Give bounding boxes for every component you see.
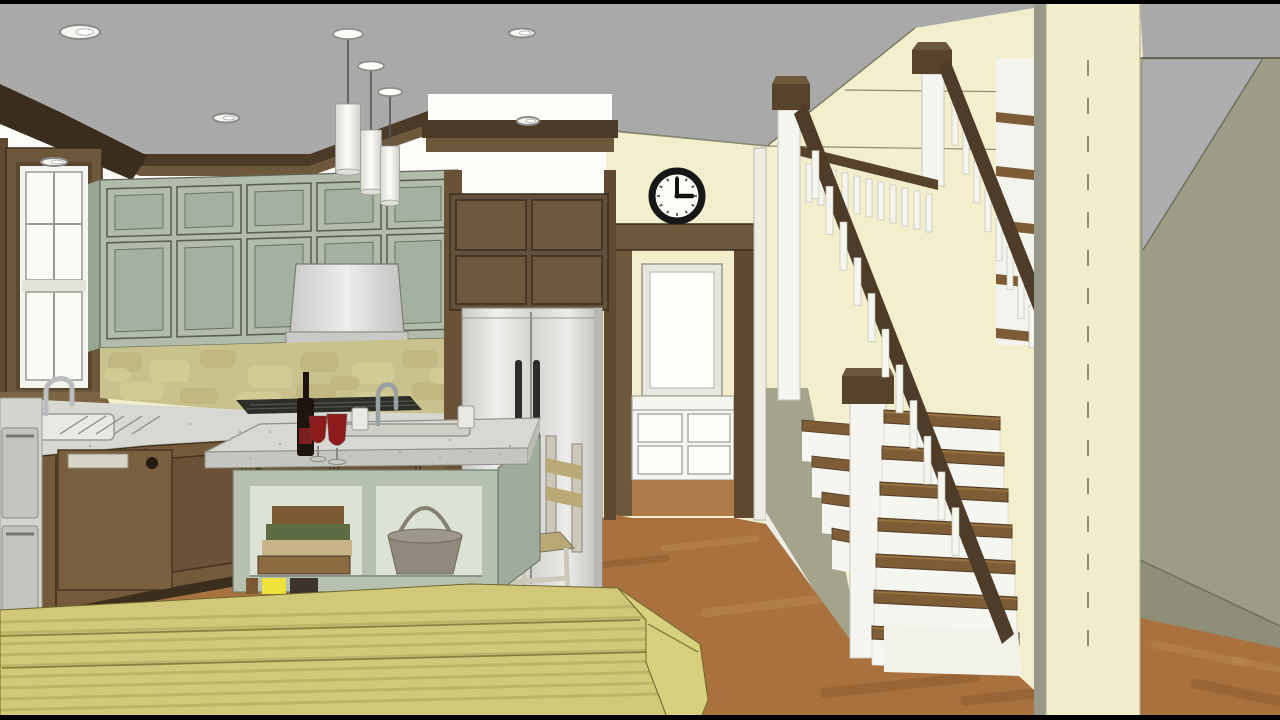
baluster [868, 293, 875, 341]
sofa [0, 584, 708, 720]
mudroom-window [650, 272, 714, 388]
wine-glass-bowl [327, 414, 347, 446]
canister [458, 406, 474, 428]
backsplash-tile-texture [402, 350, 438, 368]
book-dark [290, 578, 318, 594]
range-hood [290, 264, 404, 332]
baluster [854, 176, 860, 214]
upper-gray-band [1140, 4, 1280, 58]
dishwasher [58, 450, 172, 590]
pendant-shade-bottom [381, 200, 400, 206]
over-fridge-door [456, 200, 526, 250]
baluster [926, 194, 932, 232]
baluster [840, 222, 847, 270]
baluster [910, 401, 917, 449]
baluster [854, 258, 861, 306]
stair-newel-landing [778, 110, 800, 400]
baluster [812, 151, 819, 199]
upper-cabinet-door-panel [185, 192, 233, 228]
door-head-casing [606, 224, 756, 250]
canister [352, 408, 368, 430]
counter-speckle-dot [239, 431, 241, 433]
backsplash-tile-texture [300, 352, 338, 372]
pendant-shade-bottom [336, 169, 361, 175]
book-yellow [262, 578, 286, 594]
recessed-light-lens [76, 29, 94, 35]
newel-cap-bottom [842, 376, 894, 404]
newel-cap-landing-top-face [772, 76, 810, 84]
upper-cabinet-side [88, 180, 100, 352]
backsplash-tile-texture [104, 368, 130, 382]
book [258, 556, 350, 574]
clock-center [675, 194, 680, 199]
upper-cabinet-door-panel [395, 186, 441, 222]
window-meeting-rail [22, 280, 86, 292]
letterbox-top [0, 0, 1280, 4]
newel-cap-top-face [912, 42, 952, 50]
builtin-drawer [688, 446, 730, 474]
baluster [938, 472, 945, 520]
island-shelf-divider [362, 486, 376, 576]
wine-bottle-neck [303, 372, 309, 402]
counter-speckle-dot [189, 423, 191, 425]
pendant-canopy [378, 88, 402, 96]
book [266, 524, 350, 540]
recessed-light-lens [223, 116, 235, 120]
builtin-drawer [638, 414, 682, 442]
upper-cabinets [88, 170, 458, 352]
counter-speckle-dot [269, 431, 271, 433]
counter-speckle-dot [139, 429, 141, 431]
backsplash-tile-texture [120, 382, 164, 400]
backsplash-tile-texture [150, 360, 190, 382]
over-fridge-door [532, 200, 602, 250]
counter-speckle-dot [249, 457, 251, 459]
baluster [882, 329, 889, 377]
counter-speckle-dot [509, 445, 511, 447]
corner-trim [754, 148, 766, 520]
interior-rendering [0, 0, 1280, 720]
book [262, 540, 352, 556]
counter-speckle-dot [439, 457, 441, 459]
builtin-drawer [638, 446, 682, 474]
baluster [826, 186, 833, 234]
counter-speckle-dot [349, 455, 351, 457]
mudroom-floor [632, 480, 734, 516]
over-fridge-door [532, 256, 602, 304]
baluster [902, 188, 908, 226]
stair-newel-top [922, 74, 944, 186]
pendant-canopy [358, 62, 384, 71]
baluster [878, 182, 884, 220]
baluster [890, 185, 896, 223]
rendering-stage [0, 0, 1280, 720]
counter-speckle-dot [499, 453, 501, 455]
baluster [806, 164, 812, 202]
column-shade-strip [1034, 0, 1046, 720]
column [1046, 0, 1140, 720]
counter-speckle-dot [449, 439, 451, 441]
upper-cabinet-door-panel [255, 190, 303, 226]
pendant-shade [336, 104, 361, 172]
backsplash-tile-texture [248, 366, 292, 388]
upper-cabinet-door-panel [115, 194, 163, 230]
book-small [246, 578, 258, 594]
structural-column [1034, 0, 1140, 720]
pendant-canopy [333, 29, 363, 39]
pendant-shade-bottom [361, 189, 382, 195]
oven-door-upper [2, 428, 38, 518]
counter-speckle-dot [279, 443, 281, 445]
backsplash-tile-texture [200, 350, 236, 368]
baluster [952, 508, 959, 556]
upper-cabinet-door-panel [185, 246, 233, 330]
upper-cabinet-door-panel [115, 248, 163, 332]
over-fridge-door [456, 256, 526, 304]
builtin-drawer [688, 414, 730, 442]
counter-speckle-dot [89, 445, 91, 447]
wine-glass-base [328, 460, 346, 465]
baluster [866, 179, 872, 217]
baluster [924, 436, 931, 484]
wine-glass-base [310, 457, 326, 462]
backsplash-tile-texture [180, 388, 218, 404]
baluster [896, 365, 903, 413]
book [272, 506, 344, 524]
basket-rim [388, 529, 462, 543]
letterbox-bottom [0, 715, 1280, 720]
door-jamb-right [734, 250, 754, 518]
counter-speckle-dot [399, 451, 401, 453]
counter-speckle-dot [469, 451, 471, 453]
fridge-side-shade [594, 308, 602, 588]
wall-clock [652, 171, 702, 221]
wine-glass-bowl [309, 416, 327, 443]
counter-speckle-dot [229, 439, 231, 441]
backsplash-tile-texture [330, 376, 360, 390]
recessed-light-lens [51, 160, 63, 164]
recessed-light-lens [526, 119, 536, 123]
recessed-light-lens [519, 31, 531, 35]
pendant-shade [381, 146, 400, 203]
baluster [914, 191, 920, 229]
fridge-crown-mid [426, 138, 614, 152]
dishwasher-control-panel [68, 454, 128, 468]
island-counter-edge [205, 448, 528, 468]
dishwasher-knob [146, 457, 158, 469]
pendant-shade [361, 130, 382, 192]
